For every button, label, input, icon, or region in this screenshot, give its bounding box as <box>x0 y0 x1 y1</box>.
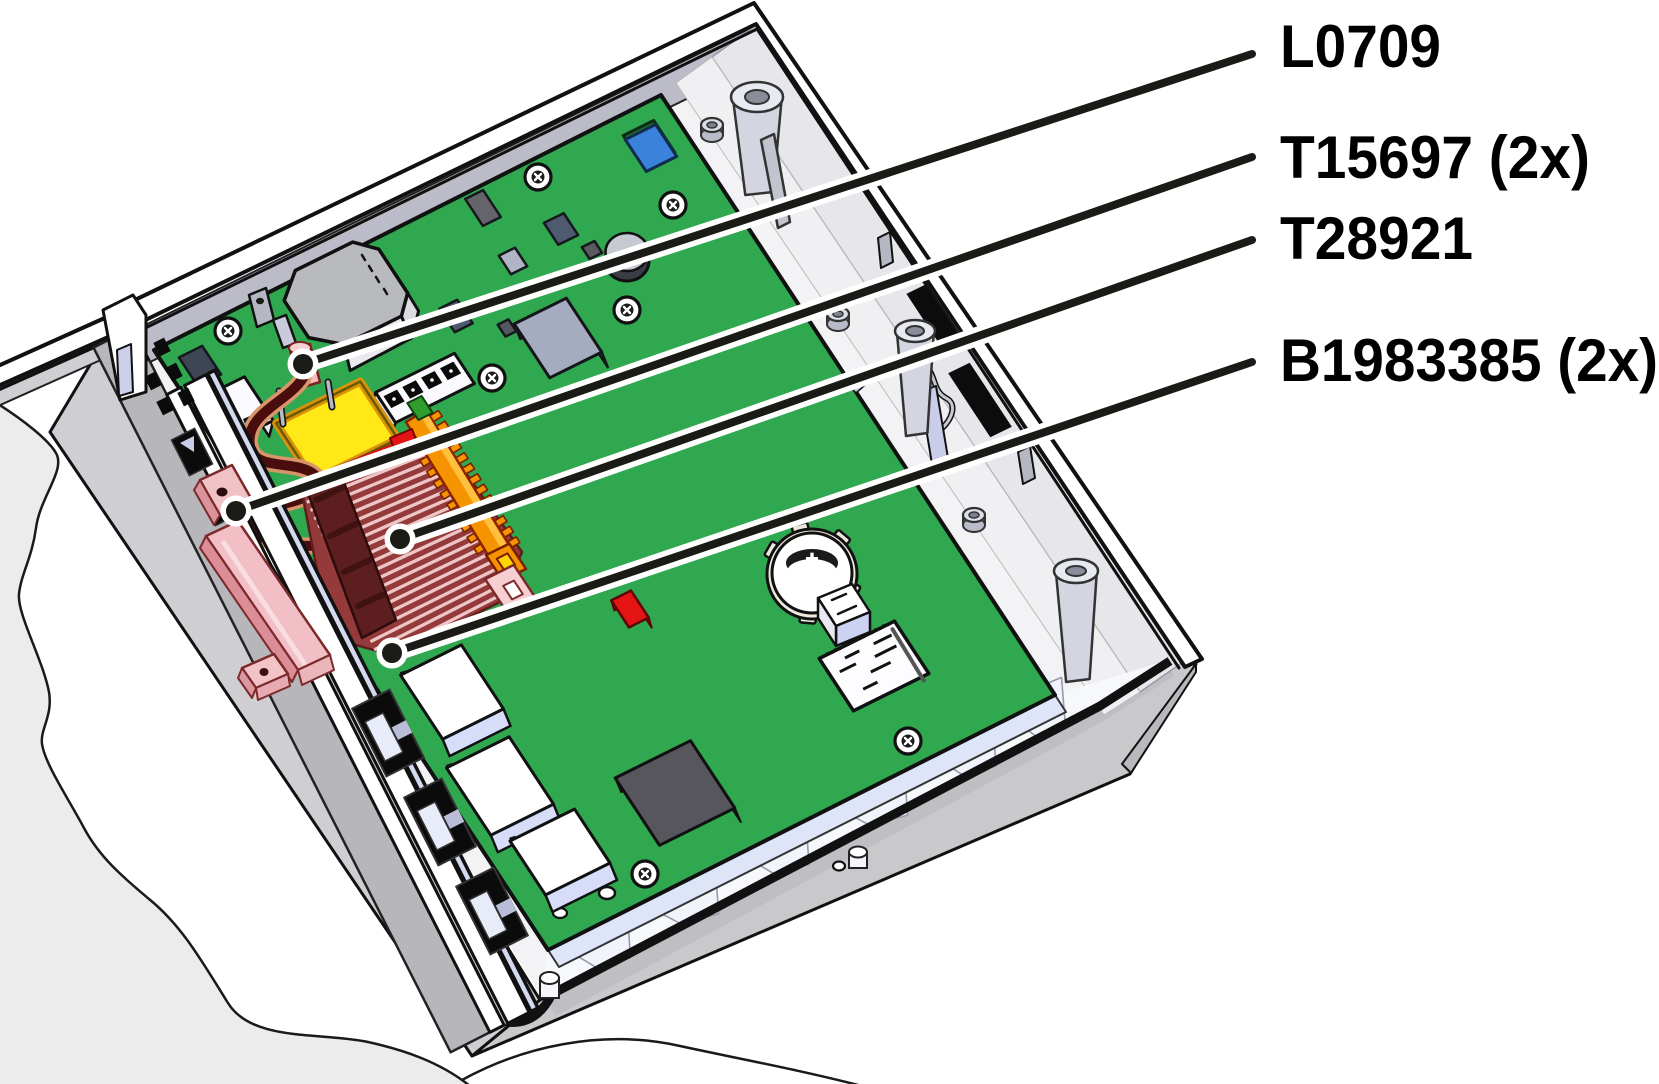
svg-text:B1983385 (2x): B1983385 (2x) <box>1280 327 1658 394</box>
svg-text:T28921: T28921 <box>1280 205 1473 272</box>
svg-text:T15697 (2x): T15697 (2x) <box>1280 124 1590 191</box>
svg-text:L0709: L0709 <box>1280 13 1441 80</box>
